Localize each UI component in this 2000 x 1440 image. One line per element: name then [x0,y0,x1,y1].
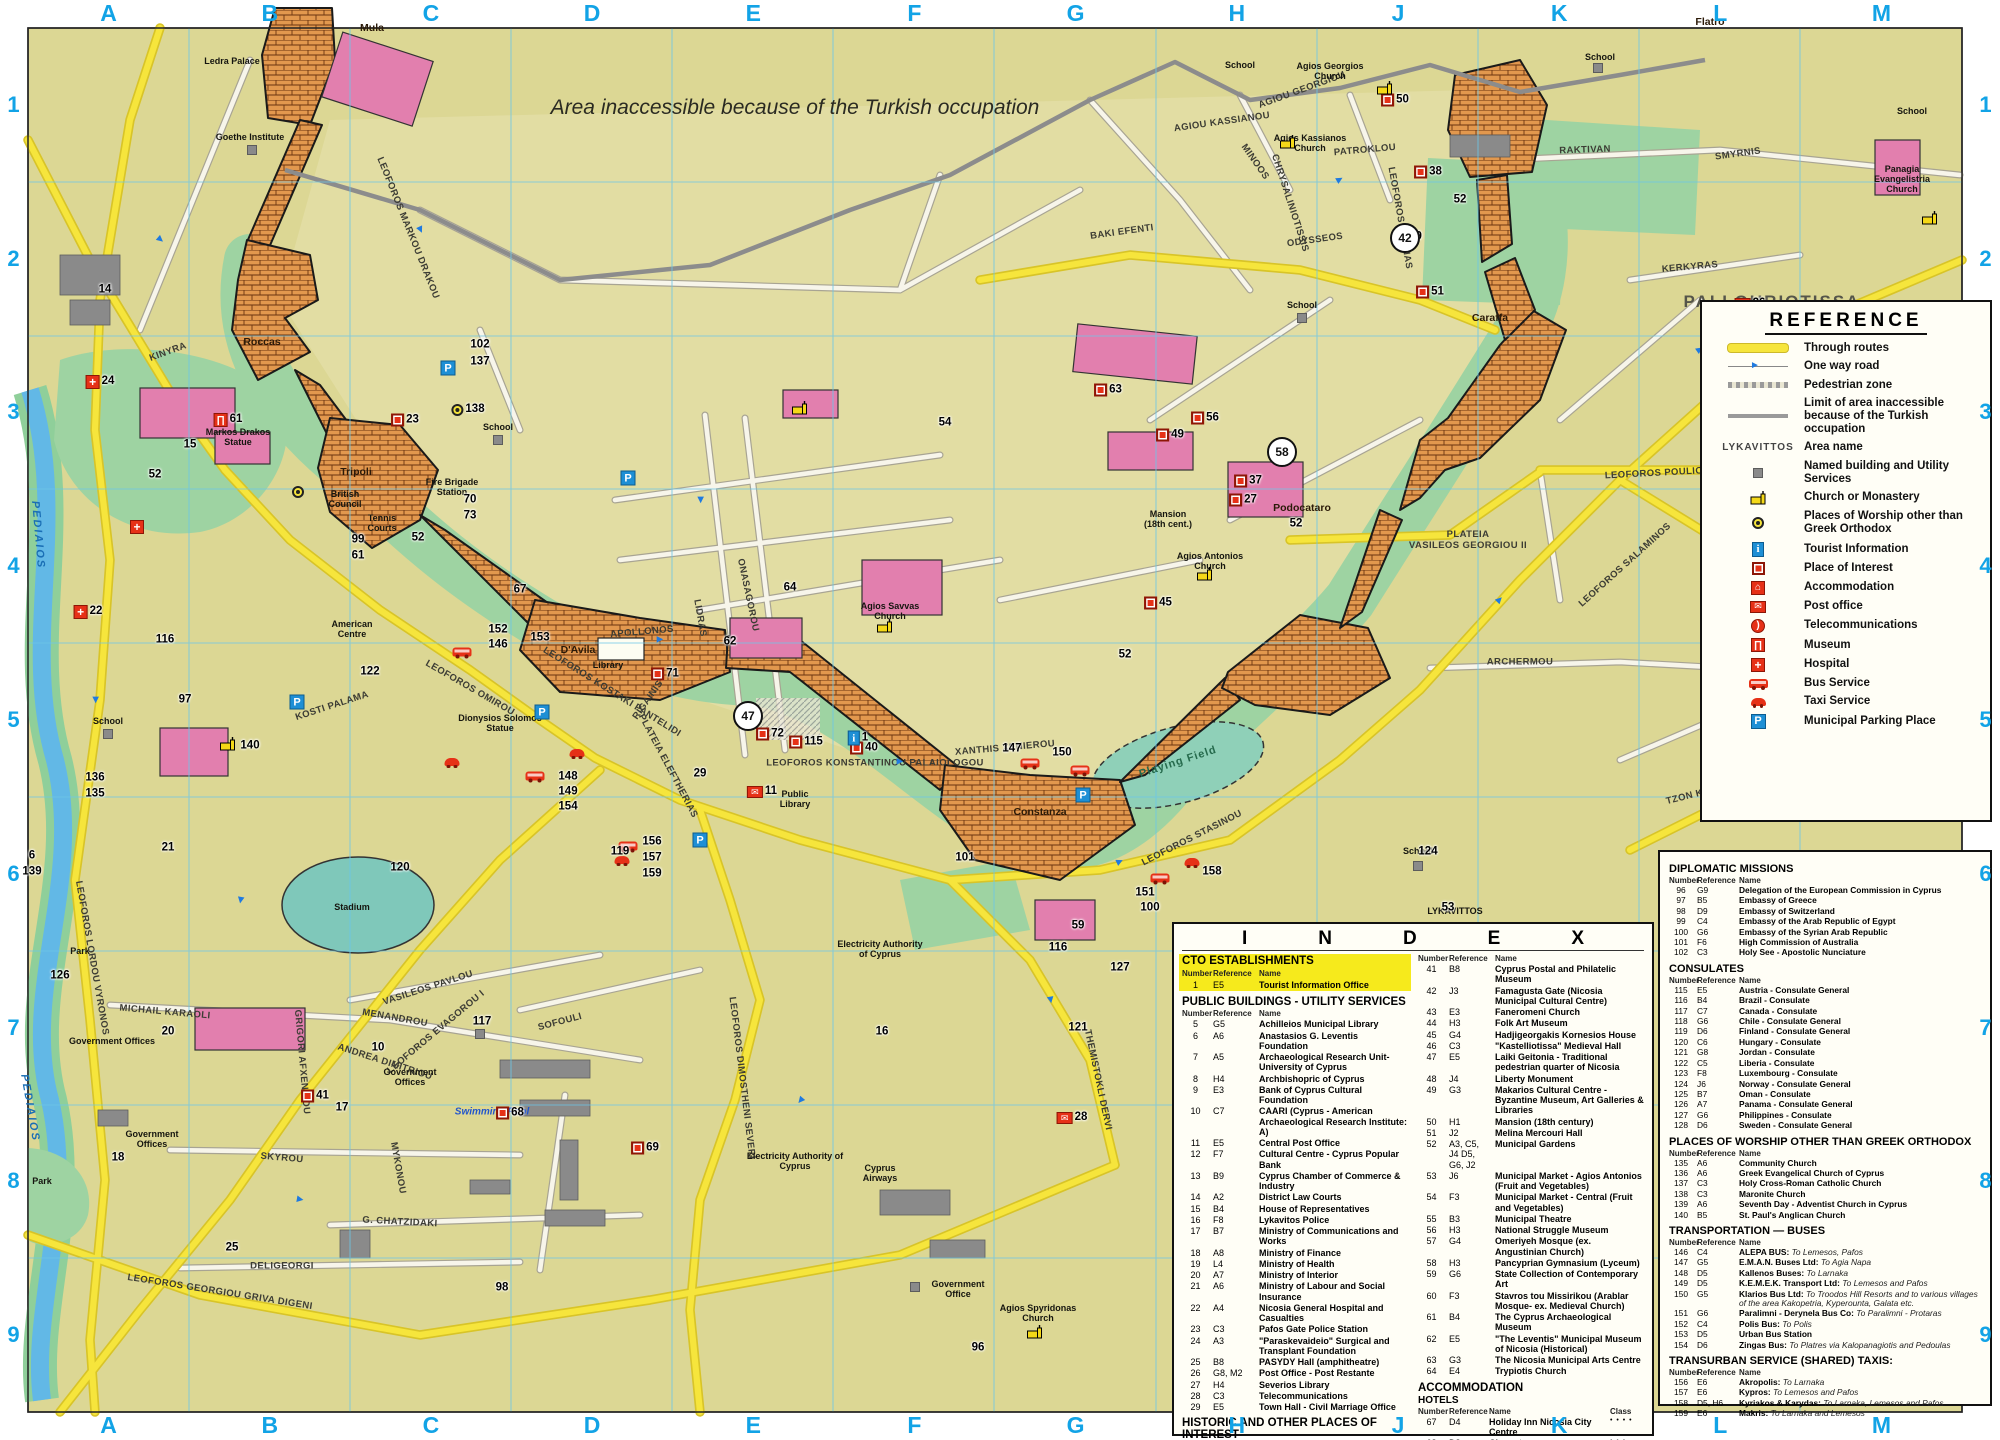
column-headers: NumberReferenceName [1669,976,1981,985]
bldg-marker [493,435,503,445]
directory-row: 18A8Ministry of Finance [1182,1248,1408,1258]
num-marker: 59 [1072,920,1085,932]
directory-row: 42J3Famagusta Gate (Nicosia Municipal Cu… [1418,986,1644,1007]
directory-row: 150G5Klarios Bus Ltd: To Troodos Hill Re… [1669,1290,1981,1309]
directory-row: 128D6Sweden - Consulate General [1669,1121,1981,1130]
directory-row: 14A2District Law Courts [1182,1192,1408,1202]
parking-marker: P [1076,788,1091,803]
num-marker: 150 [1052,747,1071,759]
marker-number: 50 [1396,94,1409,106]
marker-number: 147 [1002,743,1021,755]
arrow-marker: ► [90,695,101,706]
num-marker: 120 [390,862,409,874]
marker-number: 27 [1244,494,1257,506]
num-marker: 54 [939,417,952,429]
bus-marker [1021,759,1040,768]
directory-row: 146C4ALEPA BUS: To Lemesos, Pafos [1669,1248,1981,1257]
marker-number: 116 [1049,942,1068,954]
num-marker: 73 [464,510,477,522]
num-marker: 98 [496,1282,509,1294]
grid-letter-J: J [1317,1412,1478,1439]
directory-row: 122C5Liberia - Consulate [1669,1059,1981,1068]
grid-letter-G: G [995,0,1156,27]
directory-row: 44H3Folk Art Museum [1418,1018,1644,1028]
marker-number: 69 [646,1142,659,1154]
ped-icon [1712,382,1804,388]
bldg-marker [910,1282,920,1292]
directory-row: 19L4Ministry of Health [1182,1259,1408,1269]
legend-item: Bus Service [1712,677,1980,690]
marker-number: 52 [1454,194,1467,206]
marker-number: 100 [1140,902,1159,914]
grid-letter-L: L [1640,1412,1801,1439]
marker-number: 151 [1135,887,1154,899]
grid-letter-C: C [350,1412,511,1439]
directory-row: 45G4Hadjigeorgakis Kornesios House [1418,1030,1644,1040]
num-marker: 126 [50,970,69,982]
directory-row: 25B8PASYDY Hall (amphitheatre) [1182,1357,1408,1367]
directory-row: 63G3The Nicosia Municipal Arts Centre [1418,1355,1644,1365]
marker-number: 127 [1110,962,1129,974]
section-subtitle: HOTELS [1418,1395,1644,1406]
num-marker: 121 [1068,1022,1087,1034]
legend-label: Church or Monastery [1804,491,1980,504]
marker-number: 137 [470,356,489,368]
grid-number-1: 1 [0,28,27,182]
marker-number: 99 [352,534,365,546]
num-marker: 16 [876,1026,889,1038]
marker-number: 156 [642,836,661,848]
bldg-marker [475,1029,485,1039]
num-marker: 154 [558,801,577,813]
num-marker: 148 [558,771,577,783]
directory-row: 52A3, C5, J4 D5, G6, J2Municipal Gardens [1418,1139,1644,1170]
grid-letter-J: J [1317,0,1478,27]
num-marker: 117 [473,1016,492,1028]
legend-label: Taxi Service [1804,695,1980,708]
parking-marker: P [441,361,456,376]
legend-label: Museum [1804,639,1980,652]
directory-row: 156E6Akropolis: To Larnaka [1669,1378,1981,1387]
grid-letter-A: A [28,1412,189,1439]
poi-marker: 68 [496,1107,524,1120]
directory-row: 97B5Embassy of Greece [1669,896,1981,905]
column-headers: NumberReferenceName [1669,1238,1981,1247]
directory-row: 16F8Lykavitos Police [1182,1215,1408,1225]
grid-letter-L: L [1640,0,1801,27]
church-marker [220,737,237,751]
directory-row: 138C3Maronite Church [1669,1190,1981,1199]
grid-number-2: 2 [0,182,27,336]
stadium-oval [282,857,434,953]
oneway-icon [1712,366,1804,367]
num-marker: 52 [412,532,425,544]
marker-number: 122 [360,666,379,678]
info-icon: i [1712,542,1804,557]
directory-row: 152C4Polis Bus: To Polis [1669,1320,1981,1329]
bus-marker [1151,874,1170,883]
marker-number: 150 [1052,747,1071,759]
num-marker: 96 [972,1342,985,1354]
grid-number-4: 4 [0,489,27,643]
legend-item: +Hospital [1712,658,1980,672]
marker-number: 135 [85,788,104,800]
legend-item: )Telecommunications [1712,619,1980,633]
num-marker: 25 [226,1242,239,1254]
section-title: DIPLOMATIC MISSIONS [1669,863,1981,875]
num-marker: 6 [29,850,35,862]
num-marker: 53 [1442,902,1455,914]
directory-row: 117C7Canada - Consulate [1669,1007,1981,1016]
index-title: INDEX [1182,928,1644,951]
directory-row: 98D9Embassy of Switzerland [1669,907,1981,916]
grid-number-7: 7 [0,951,27,1105]
num-marker: 147 [1002,743,1021,755]
section-title: ACCOMMODATION [1418,1382,1644,1394]
section-title: PLACES OF WORSHIP OTHER THAN GREEK ORTHO… [1669,1136,1981,1148]
marker-number: 61 [352,550,365,562]
grid-number-2: 2 [1972,182,1999,336]
directory-row: 124J6Norway - Consulate General [1669,1080,1981,1089]
directory-row: 43E3Faneromeni Church [1418,1007,1644,1017]
marker-number: 18 [112,1152,125,1164]
marker-number: 124 [1418,846,1437,858]
poi-marker: 71 [651,668,679,681]
section-title: TRANSPORTATION — BUSES [1669,1225,1981,1237]
poi-marker: 115 [789,736,823,749]
num-marker: 67 [514,584,527,596]
legend-label: One way road [1804,360,1980,373]
directory-row: 1E5Tourist Information Office [1179,979,1411,991]
arrow-marker: ► [234,894,247,907]
poi-marker: 69 [631,1142,659,1155]
marker-number: 25 [226,1242,239,1254]
directory-row: 158D5, H6Kyriakos & Karydas: To Larnaka,… [1669,1399,1981,1408]
directory-row: 148D5Kallenos Buses: To Larnaka [1669,1269,1981,1278]
num-marker: 15 [184,439,197,451]
circle-marker: 42 [1390,223,1420,253]
num-marker: 102 [470,339,489,351]
poi-marker: 63 [1094,384,1122,397]
legend-label: Municipal Parking Place [1804,715,1980,728]
num-marker: 20 [162,1026,175,1038]
directory-row: 22A4Nicosia General Hospital and Casualt… [1182,1303,1408,1324]
grid-letter-G: G [995,1412,1156,1439]
index-column-left: CTO ESTABLISHMENTSNumberReferenceName1E5… [1182,954,1408,1440]
directory-row: 54F3Municipal Market - Central (Fruit an… [1418,1192,1644,1213]
marker-number: 153 [530,632,549,644]
grid-letter-A: A [28,0,189,27]
marker-number: 148 [558,771,577,783]
num-marker: 135 [85,788,104,800]
post-marker: ✉11 [747,786,777,798]
marker-number: 146 [488,639,507,651]
directory-row: 59G6State Collection of Contemporary Art [1418,1269,1644,1290]
column-headers: NumberReferenceName [1669,1149,1981,1158]
marker-number: 52 [1119,649,1132,661]
legend-item: iTourist Information [1712,542,1980,557]
grid-letter-K: K [1479,1412,1640,1439]
directory-row: 49G3Makarios Cultural Centre - Byzantine… [1418,1085,1644,1116]
arrow-marker: ► [695,495,706,506]
area-name-example: LYKAVITTOS [1722,442,1794,453]
directory-row: 57G4Omeriyeh Mosque (ex. Angustinian Chu… [1418,1236,1644,1257]
index-title-letter: I [1242,928,1247,950]
column-headers: NumberReferenceName [1179,968,1411,979]
bldg-marker [1297,313,1307,323]
marker-number: 41 [316,1090,329,1102]
church-marker [1922,211,1939,225]
num-marker: 10 [372,1042,385,1054]
marker-number: 119 [611,846,630,858]
legend-item: Pedestrian zone [1712,379,1980,392]
directory-row: 153D5Urban Bus Station [1669,1330,1981,1339]
directory-row: 147G5E.M.A.N. Buses Ltd: To Agia Napa [1669,1258,1981,1267]
marker-number: 59 [1072,920,1085,932]
legend-label: Tourist Information [1804,543,1980,556]
marker-number: 62 [724,636,737,648]
directory-row: 7A5Archaeological Research Unit- Univers… [1182,1052,1408,1073]
directory-row: 10C7CAARI (Cyprus - American Archaeologi… [1182,1106,1408,1137]
poi-marker: 41 [301,1090,329,1103]
legend-label: Telecommunications [1804,619,1980,632]
through-icon [1712,343,1804,353]
marker-number: 54 [939,417,952,429]
num-marker: 157 [642,852,661,864]
marker-number: 16 [876,1026,889,1038]
directory-row: 51J2Melina Mercouri Hall [1418,1128,1644,1138]
section-title: CONSULATES [1669,963,1981,975]
poi-marker: 49 [1156,429,1184,442]
marker-number: 68 [511,1107,524,1119]
num-marker: 14 [99,284,112,296]
legend-item: ∏Museum [1712,638,1980,652]
num-marker: 61 [352,550,365,562]
legend-item: Limit of area inaccessible because of th… [1712,397,1980,436]
directory-row: 48J4Liberty Monument [1418,1074,1644,1084]
grid-number-4: 4 [1972,489,1999,643]
legend-label: Hospital [1804,658,1980,671]
directory-row: 12F7Cultural Centre - Cyprus Popular Ban… [1182,1149,1408,1170]
limit-icon [1712,414,1804,418]
poi-marker: 51 [1416,286,1444,299]
legend-item: ⌂Accommodation [1712,581,1980,595]
directory-row: 119D6Finland - Consulate General [1669,1027,1981,1036]
grid-number-3: 3 [0,336,27,490]
church-marker [1197,567,1214,581]
marker-number: 73 [464,510,477,522]
directory-row: 149D5K.E.M.E.K. Transport Ltd: To Lemeso… [1669,1279,1981,1288]
grid-number-6: 6 [0,797,27,951]
grid-number-9: 9 [0,1258,27,1412]
grid-number-6: 6 [1972,797,1999,951]
num-marker: 116 [156,634,175,646]
marker-number: 52 [1290,518,1303,530]
marker-number: 56 [1206,412,1219,424]
section-title: PUBLIC BUILDINGS - UTILITY SERVICES [1182,996,1408,1008]
num-marker: 156 [642,836,661,848]
num-marker: 62 [724,636,737,648]
marker-number: 101 [955,852,974,864]
column-headers: NumberReferenceName [1182,1009,1408,1018]
hosp-icon: + [1712,658,1804,672]
directory-row: 28C3Telecommunications [1182,1391,1408,1401]
directory-row: 99C4Embassy of the Arab Republic of Egyp… [1669,917,1981,926]
poi-marker: 23 [391,414,419,427]
marker-number: 120 [390,862,409,874]
marker-number: 158 [1202,866,1221,878]
grid-letter-C: C [350,0,511,27]
directory-row: 126A7Panama - Consulate General [1669,1100,1981,1109]
marker-number: 63 [1109,384,1122,396]
marker-number: 72 [771,728,784,740]
bldg-icon [1712,468,1804,478]
taxi-marker [445,758,460,766]
church-marker [1027,1325,1044,1339]
church-icon [1712,491,1804,505]
grid-number-7: 7 [1972,951,1999,1105]
marker-number: 136 [85,772,104,784]
grid-number-1: 1 [1972,28,1999,182]
num-marker: 140 [240,740,259,752]
marker-number: 17 [336,1102,349,1114]
legend-item: LYKAVITTOSArea name [1712,441,1980,454]
worship-marker: 138 [451,404,484,416]
grid-letter-D: D [512,1412,673,1439]
directory-row: 120C6Hungary - Consulate [1669,1038,1981,1047]
parking-marker: P [535,705,550,720]
marker-number: 154 [558,801,577,813]
marker-number: 61 [230,414,243,426]
marker-number: 6 [29,850,35,862]
directory-row: 8H4Archbishopric of Cyprus [1182,1074,1408,1084]
marker-number: 52 [149,469,162,481]
marker-number: 96 [972,1342,985,1354]
church-marker [792,401,809,415]
marker-number: 67 [514,584,527,596]
directory-row: 15B4House of Representatives [1182,1204,1408,1214]
legend-label: Places of Worship other than Greek Ortho… [1804,510,1980,536]
num-marker: 152 [488,624,507,636]
num-marker: 70 [464,494,477,506]
grid-letter-M: M [1801,1412,1962,1439]
telecom-icon: ) [1712,619,1804,633]
num-marker: 124 [1418,846,1437,858]
marker-number: 11 [765,786,777,798]
grid-number-5: 5 [0,643,27,797]
marker-number: 20 [162,1026,175,1038]
grid-number-8: 8 [1972,1104,1999,1258]
directory-row: 9E3Bank of Cyprus Cultural Foundation [1182,1085,1408,1106]
directory-row: 136A6Greek Evangelical Church of Cyprus [1669,1169,1981,1178]
num-marker: 100 [1140,902,1159,914]
hosp-marker: +24 [86,375,115,389]
num-marker: 116 [1049,942,1068,954]
column-headers: NumberReferenceName [1669,1368,1981,1377]
legend-label: Pedestrian zone [1804,379,1980,392]
directory-row: 96G9Delegation of the European Commissio… [1669,886,1981,895]
marker-number: 115 [804,736,823,748]
directory-row: 46C3"Kastelliotissa" Medieval Hall [1418,1041,1644,1051]
library-building [598,638,644,660]
column-headers: NumberReferenceName [1669,876,1981,885]
circle-marker: 58 [1267,437,1297,467]
num-marker: 146 [488,639,507,651]
legend-item: PMunicipal Parking Place [1712,714,1980,729]
legend-item: Named building and Utility Services [1712,460,1980,486]
num-marker: 136 [85,772,104,784]
church-marker [1280,135,1297,149]
bus-marker [526,772,545,781]
directory-row: 60F3Stavros tou Missirikou (Arablar Mosq… [1418,1291,1644,1312]
poi-marker: 45 [1144,597,1172,610]
directory-row: 6A6Anastasios G. Leventis Foundation [1182,1031,1408,1052]
grid-number-3: 3 [1972,336,1999,490]
legend-item: Through routes [1712,342,1980,355]
legend-item: One way road [1712,360,1980,373]
directory-row: 121G8Jordan - Consulate [1669,1048,1981,1057]
reference-legend-panel: REFERENCE Through routesOne way roadPede… [1700,300,1992,822]
directory-row: 56H3National Struggle Museum [1418,1225,1644,1235]
index-title-letter: E [1488,928,1501,950]
arrow-marker: ► [1044,994,1057,1007]
directory-row: 100G6Embassy of the Syrian Arab Republic [1669,928,1981,937]
directory-row: 24A3"Paraskevaideio" Surgical and Transp… [1182,1336,1408,1357]
directory-row: 137C3Holy Cross-Roman Catholic Church [1669,1179,1981,1188]
parking-marker: P [693,833,708,848]
legend-label: Limit of area inaccessible because of th… [1804,397,1980,436]
num-marker: 153 [530,632,549,644]
index-column-right: NumberReferenceName41B8Cyprus Postal and… [1418,954,1644,1440]
marker-number: 38 [1429,166,1442,178]
directory-row: 41B8Cyprus Postal and Philatelic Museum [1418,964,1644,985]
arrow-marker: ► [655,635,666,646]
arrow-marker: ► [895,757,906,768]
directory-row: 55B3Municipal Theatre [1418,1214,1644,1224]
poi-marker: 50 [1381,94,1409,107]
num-marker: 52 [149,469,162,481]
museum-marker: ∏61 [214,413,243,427]
poi-marker: 56 [1191,412,1219,425]
grid-number-8: 8 [0,1104,27,1258]
bldg-marker [247,145,257,155]
marker-number: 64 [784,582,797,594]
legend-item: Place of Interest [1712,562,1980,575]
index-title-letter: X [1571,928,1584,950]
marker-number: 10 [372,1042,385,1054]
marker-number: 15 [184,439,197,451]
directory-row: 53J6Municipal Market - Agios Antonios (F… [1418,1171,1644,1192]
num-marker: 127 [1110,962,1129,974]
marker-number: 159 [642,868,661,880]
nicosia-tourist-map: Area inaccessible because of the Turkish… [0,0,2000,1440]
marker-number: 21 [162,842,175,854]
directory-row: 135A6Community Church [1669,1159,1981,1168]
directory-row: 140B5St. Paul's Anglican Church [1669,1211,1981,1220]
marker-number: 71 [666,668,679,680]
num-marker: 149 [558,786,577,798]
directory-row: 21A6Ministry of Labour and Social Insura… [1182,1281,1408,1302]
marker-number: 152 [488,624,507,636]
legend-label: Accommodation [1804,581,1980,594]
num-marker: 64 [784,582,797,594]
directory-panel: DIPLOMATIC MISSIONSNumberReferenceName96… [1658,850,1992,1406]
grid-letter-E: E [673,0,834,27]
legend-item: Taxi Service [1712,695,1980,708]
directory-row: 29E5Town Hall - Civil Marriage Office [1182,1402,1408,1412]
num-marker: 101 [955,852,974,864]
marker-number: 37 [1249,475,1262,487]
